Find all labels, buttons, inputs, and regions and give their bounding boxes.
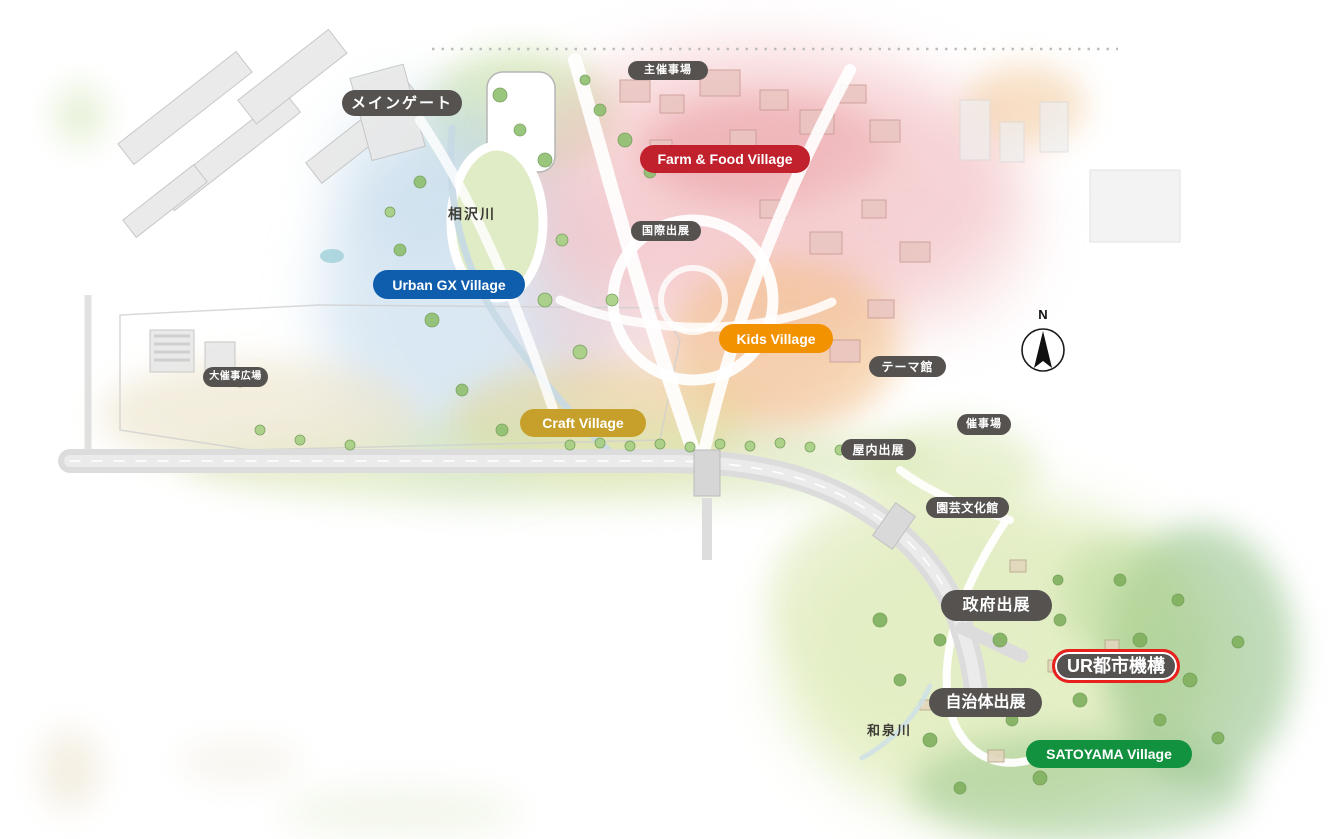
label-international-exhibits: 国際出展: [631, 221, 701, 241]
label-main-gate: メインゲート: [342, 90, 462, 116]
map-illustration: [0, 0, 1334, 839]
label-horticultural-culture-hall: 園芸文化館: [926, 497, 1009, 518]
label-grand-event-plaza: 大催事広場: [203, 367, 268, 387]
river-label-aizawa: 相沢川: [448, 204, 496, 224]
label-indoor-exhibits: 屋内出展: [841, 439, 916, 460]
river-label-izumi: 和泉川: [867, 720, 912, 739]
label-municipal-exhibits: 自治体出展: [929, 688, 1042, 717]
label-theme-pavilion: テーマ館: [869, 356, 946, 377]
label-kids-village: Kids Village: [719, 324, 833, 353]
label-farm-and-food-village: Farm & Food Village: [640, 145, 810, 173]
label-main-event-venue: 主催事場: [628, 61, 708, 80]
label-ur-urban-renaissance-agency: UR都市機構: [1052, 649, 1180, 683]
label-satoyama-village: SATOYAMA Village: [1026, 740, 1192, 768]
label-urban-gx-village: Urban GX Village: [373, 270, 525, 299]
expo-site-map: メインゲート 主催事場 Farm & Food Village 国際出展 Urb…: [0, 0, 1334, 839]
compass: N: [1017, 308, 1069, 379]
compass-rose-icon: [1017, 322, 1069, 374]
label-government-exhibits: 政府出展: [941, 590, 1052, 621]
label-craft-village: Craft Village: [520, 409, 646, 437]
label-event-venue: 催事場: [957, 414, 1011, 435]
compass-north-label: N: [1017, 308, 1069, 321]
